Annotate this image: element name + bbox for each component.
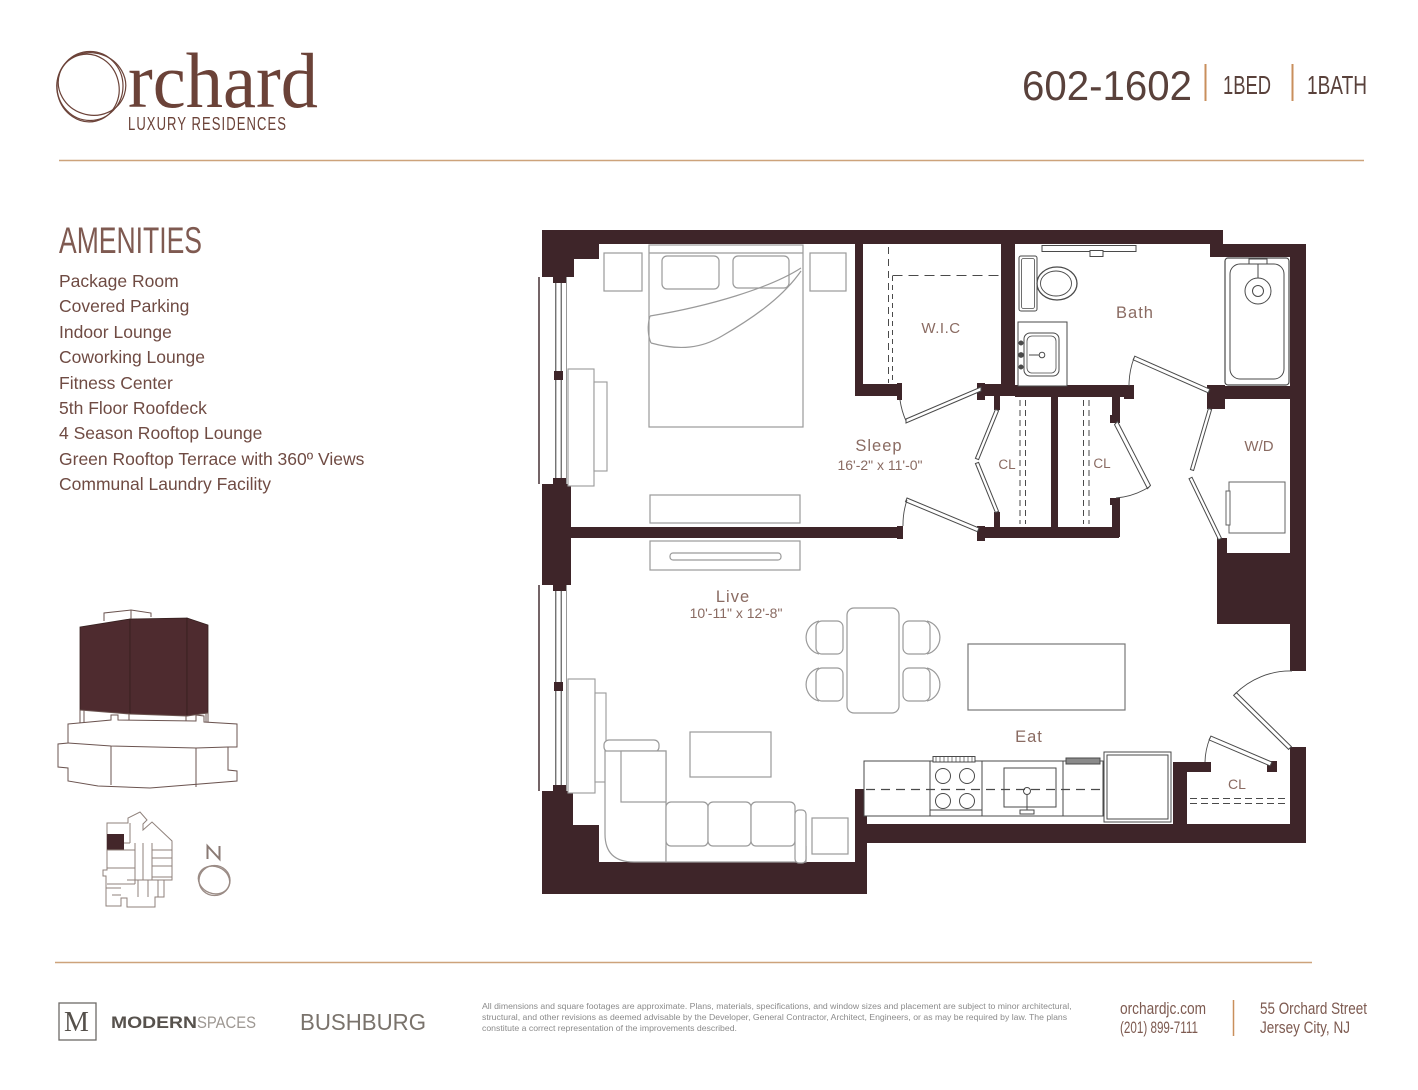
svg-text:LUXURY RESIDENCES: LUXURY RESIDENCES xyxy=(128,113,287,134)
svg-text:AMENITIES: AMENITIES xyxy=(59,220,202,261)
svg-text:(201) 899-7111: (201) 899-7111 xyxy=(1120,1019,1198,1037)
svg-text:W.I.C: W.I.C xyxy=(921,320,960,337)
svg-text:Eat: Eat xyxy=(1015,728,1043,746)
svg-text:M: M xyxy=(64,1007,89,1038)
svg-text:10'-11" x 12'-8": 10'-11" x 12'-8" xyxy=(690,605,783,621)
svg-text:orchardjc.com: orchardjc.com xyxy=(1120,1000,1206,1018)
svg-text:Bath: Bath xyxy=(1116,304,1154,322)
svg-text:rchard: rchard xyxy=(128,37,318,124)
svg-text:55 Orchard Street: 55 Orchard Street xyxy=(1260,1000,1367,1018)
svg-text:SPACES: SPACES xyxy=(197,1014,256,1032)
svg-text:Jersey City, NJ: Jersey City, NJ xyxy=(1260,1019,1350,1037)
svg-text:1BED: 1BED xyxy=(1223,70,1271,100)
svg-text:602-1602: 602-1602 xyxy=(1022,62,1192,109)
svg-text:CL: CL xyxy=(1228,776,1246,792)
svg-text:CL: CL xyxy=(998,457,1016,472)
svg-text:Live: Live xyxy=(716,588,750,606)
svg-text:1BATH: 1BATH xyxy=(1307,70,1367,100)
svg-text:MODERN: MODERN xyxy=(111,1014,197,1032)
svg-text:CL: CL xyxy=(1093,456,1111,471)
svg-text:BUSHBURG: BUSHBURG xyxy=(300,1009,426,1035)
svg-text:Sleep: Sleep xyxy=(855,437,902,455)
svg-text:16'-2" x 11'-0": 16'-2" x 11'-0" xyxy=(837,457,922,473)
svg-text:W/D: W/D xyxy=(1244,438,1273,455)
